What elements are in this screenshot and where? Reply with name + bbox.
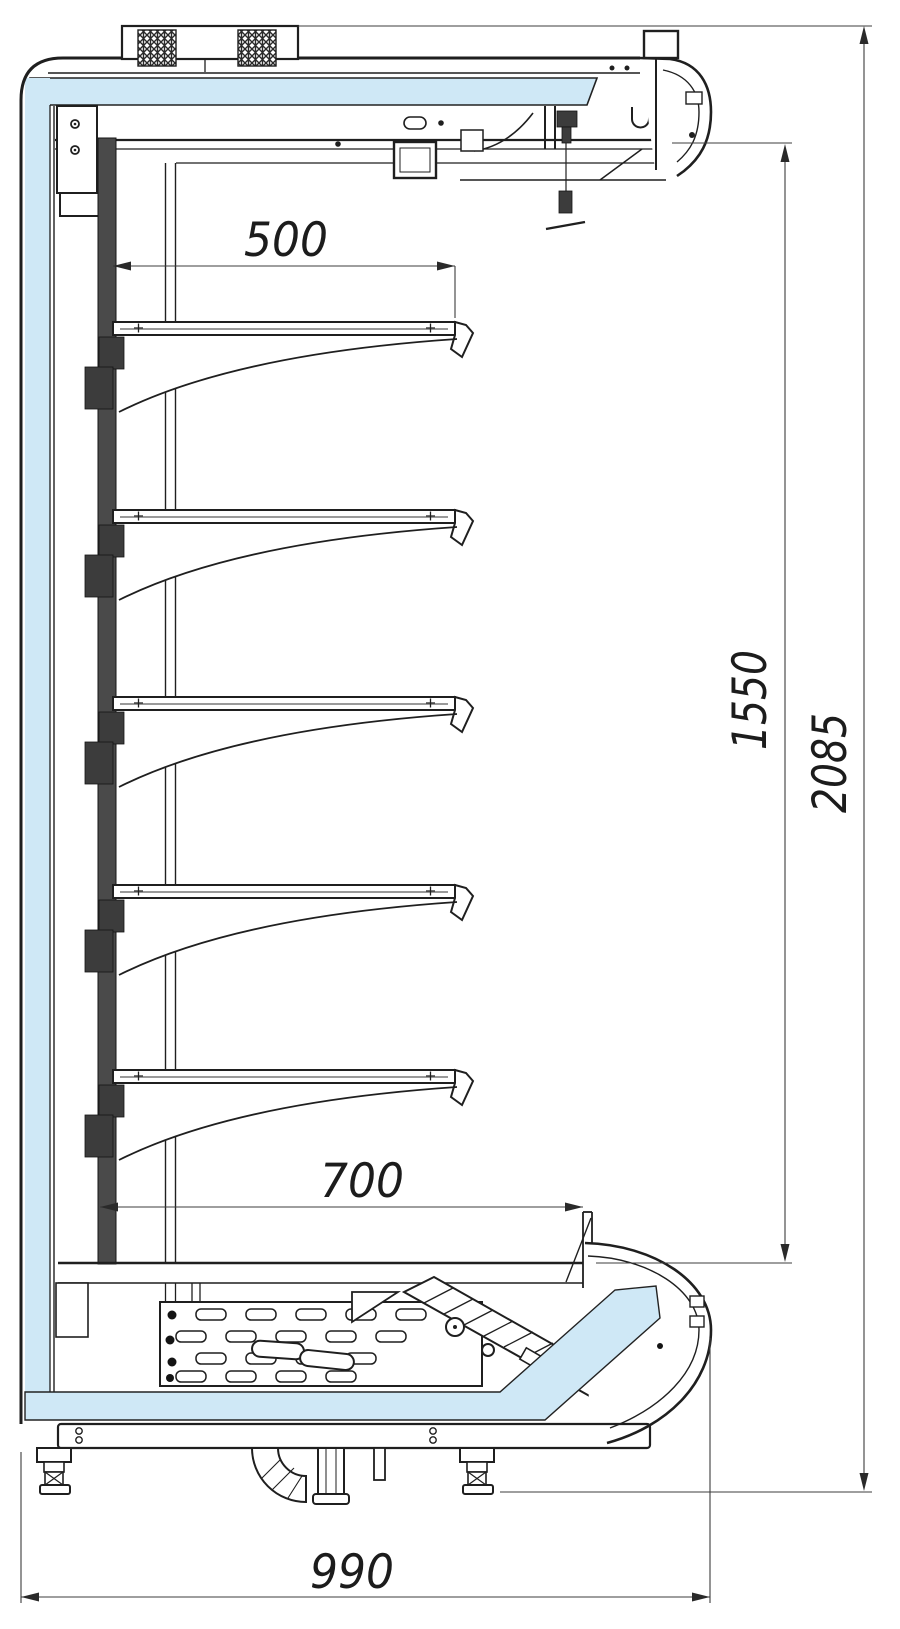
perforated-grille [160,1302,482,1386]
leg-block [460,1448,494,1462]
shelf-5 [85,1070,473,1160]
insulation-back-band [25,78,50,1420]
screw-dot-1 [438,120,444,126]
bracket-hook-upper [99,525,124,557]
fan-motor-center [453,1325,457,1329]
bracket-hook-lower [85,1115,113,1157]
dim-label-overall-depth: 990 [310,1545,394,1600]
refrigerant-tube-a [252,1340,305,1360]
dim-arrow-990-right [692,1593,710,1602]
shelf-3 [85,697,473,787]
dim-arrow-2085-top [860,26,869,44]
leg-neck [44,1462,64,1472]
plinth-band [58,1424,650,1448]
damper-block-left [138,30,176,66]
dim-arrow-500-right [437,262,455,271]
screw-dot-4 [625,66,630,71]
leg-neck [467,1462,487,1472]
bumper-rib-2 [690,1316,704,1327]
sensor-probe [559,191,572,213]
bracket-hook-lower [85,930,113,972]
bumper-screw [689,132,695,138]
drain-pipes [252,1448,385,1504]
light-box-inner [400,148,430,172]
deck-left-endcap [56,1283,88,1337]
dim-arrow-1550-top [781,144,790,162]
grille-panel [160,1302,482,1386]
dim-label-well-depth: 700 [320,1154,404,1209]
leg-foot [40,1485,70,1494]
sign-holder-block [644,31,678,58]
bracket-hook-upper [99,337,124,369]
bracket-screw-1-dot [74,123,77,126]
drain-elbow [252,1448,306,1502]
shelf-4 [85,885,473,975]
bumper-rib-detail [686,92,702,104]
canopy-slot [404,117,426,129]
bracket-hook-upper [99,900,124,932]
display-case-cross-section: 500 700 1550 2085 990 [0,0,900,1629]
drain-pipe [318,1448,344,1498]
fan-hub-circle [482,1344,494,1356]
bracket-plate [57,106,97,193]
shelf-2 [85,510,473,600]
bracket-hook-upper [99,712,124,744]
sensor-mount [557,111,577,127]
sensor-body [562,127,571,143]
canopy-bumper [600,31,711,180]
bumper-bolt [657,1343,663,1349]
screw-dot-3 [610,66,615,71]
bumper-rib-1 [690,1296,704,1307]
dim-label-opening-height: 1550 [723,650,778,750]
dim-label-shelf-depth: 500 [244,213,328,268]
bracket-hook-upper [99,1085,124,1117]
duct-transition-box [461,130,483,151]
bracket-lower-plate [60,193,103,216]
leg-block [37,1448,71,1462]
dim-arrow-2085-bottom [860,1473,869,1491]
leg-left [37,1448,71,1494]
canopy-diagonal-line [600,149,642,180]
sensor-foot [546,222,585,229]
base-plinth [58,1424,650,1448]
dim-arrow-1550-bottom [781,1244,790,1262]
dim-shelf-depth: 500 [113,213,455,318]
technical-drawing-sheet: 500 700 1550 2085 990 [0,0,900,1629]
insulation-top-band [30,78,597,105]
drain-stub [374,1448,385,1480]
screw-dot-2 [335,141,341,147]
damper-block-right [238,30,276,66]
hook-bracket [632,107,649,128]
dim-arrow-990-left [21,1593,39,1602]
bracket-screw-2-dot [74,149,77,152]
leg-right [460,1448,494,1494]
top-machinery-box [122,26,298,72]
dim-opening-height: 1550 [596,143,792,1263]
leg-foot [463,1485,493,1494]
dim-label-overall-height: 2085 [803,713,858,813]
back-top-bracket [57,106,103,216]
bracket-hook-lower [85,555,113,597]
drain-cap [313,1494,349,1504]
shelf-1 [85,322,473,412]
bracket-hook-lower [85,742,113,784]
temperature-sensor [546,111,585,229]
bracket-hook-lower [85,367,113,409]
dim-well-depth: 700 [100,1154,583,1212]
dim-overall-height: 2085 [298,26,872,1492]
dim-arrow-700-right [565,1203,583,1212]
